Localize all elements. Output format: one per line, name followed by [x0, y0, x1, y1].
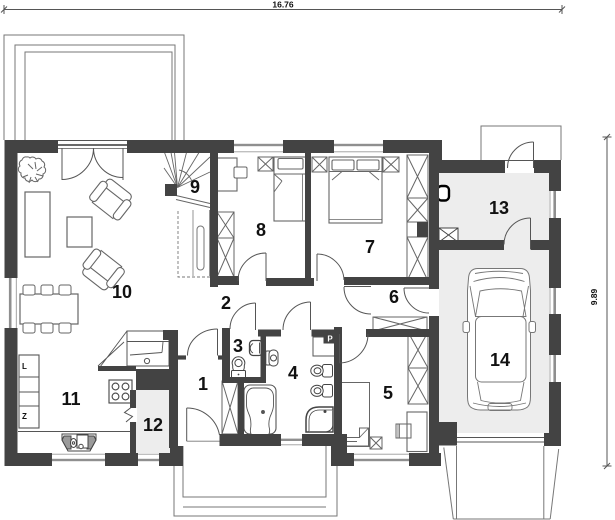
- svg-text:1: 1: [198, 374, 208, 394]
- svg-text:12: 12: [143, 415, 163, 435]
- svg-text:4: 4: [288, 363, 298, 383]
- svg-text:6: 6: [389, 287, 399, 307]
- svg-text:10: 10: [112, 282, 132, 302]
- svg-text:2: 2: [221, 293, 231, 313]
- svg-text:9.89: 9.89: [589, 288, 599, 305]
- svg-text:8: 8: [256, 220, 266, 240]
- svg-text:9: 9: [190, 177, 200, 197]
- svg-text:3: 3: [233, 336, 243, 356]
- svg-text:11: 11: [61, 389, 80, 409]
- svg-text:13: 13: [489, 198, 509, 218]
- svg-text:L: L: [22, 362, 27, 371]
- svg-text:14: 14: [490, 350, 510, 370]
- svg-text:16.76: 16.76: [272, 0, 294, 10]
- svg-text:Z: Z: [22, 412, 27, 421]
- svg-text:5: 5: [383, 383, 393, 403]
- svg-text:7: 7: [365, 237, 375, 257]
- svg-text:P: P: [327, 335, 333, 344]
